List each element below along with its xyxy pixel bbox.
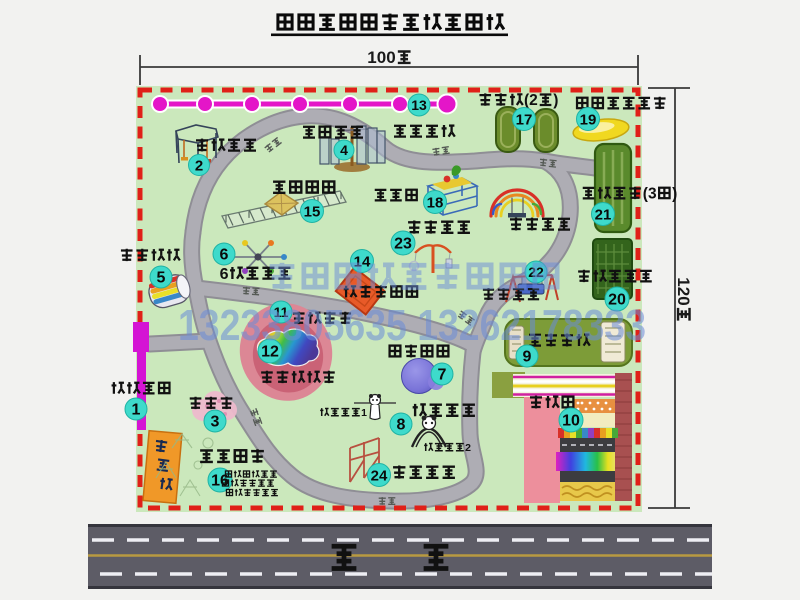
svg-text:10: 10	[562, 413, 580, 430]
svg-text:(3: (3	[643, 186, 657, 203]
svg-text:100: 100	[367, 48, 395, 67]
svg-text:8: 8	[397, 417, 406, 434]
svg-text:6: 6	[220, 247, 229, 264]
svg-text:): )	[672, 186, 677, 203]
svg-text:2: 2	[195, 158, 203, 175]
svg-text:9: 9	[523, 349, 532, 366]
svg-text:2: 2	[465, 442, 471, 454]
svg-text:13233805635 13262178333: 13233805635 13262178333	[178, 301, 646, 350]
svg-text:1: 1	[132, 402, 141, 419]
svg-text:14: 14	[354, 253, 371, 270]
svg-text:19: 19	[580, 111, 597, 128]
svg-text:7: 7	[438, 367, 447, 384]
svg-text:24: 24	[371, 467, 388, 484]
svg-text:13: 13	[411, 97, 427, 113]
svg-text:120: 120	[674, 277, 693, 305]
svg-text:18: 18	[427, 194, 444, 211]
svg-text:4: 4	[340, 142, 348, 158]
svg-text:15: 15	[304, 203, 321, 220]
svg-text:): )	[553, 92, 558, 109]
svg-text:3: 3	[211, 414, 220, 431]
svg-text:17: 17	[516, 111, 533, 128]
svg-text:6: 6	[220, 266, 229, 283]
svg-text:(2: (2	[524, 92, 538, 109]
svg-text:1: 1	[361, 407, 367, 419]
svg-text:16: 16	[211, 473, 229, 490]
svg-text:23: 23	[394, 236, 412, 253]
svg-text:21: 21	[595, 206, 612, 223]
svg-text:5: 5	[157, 270, 166, 287]
